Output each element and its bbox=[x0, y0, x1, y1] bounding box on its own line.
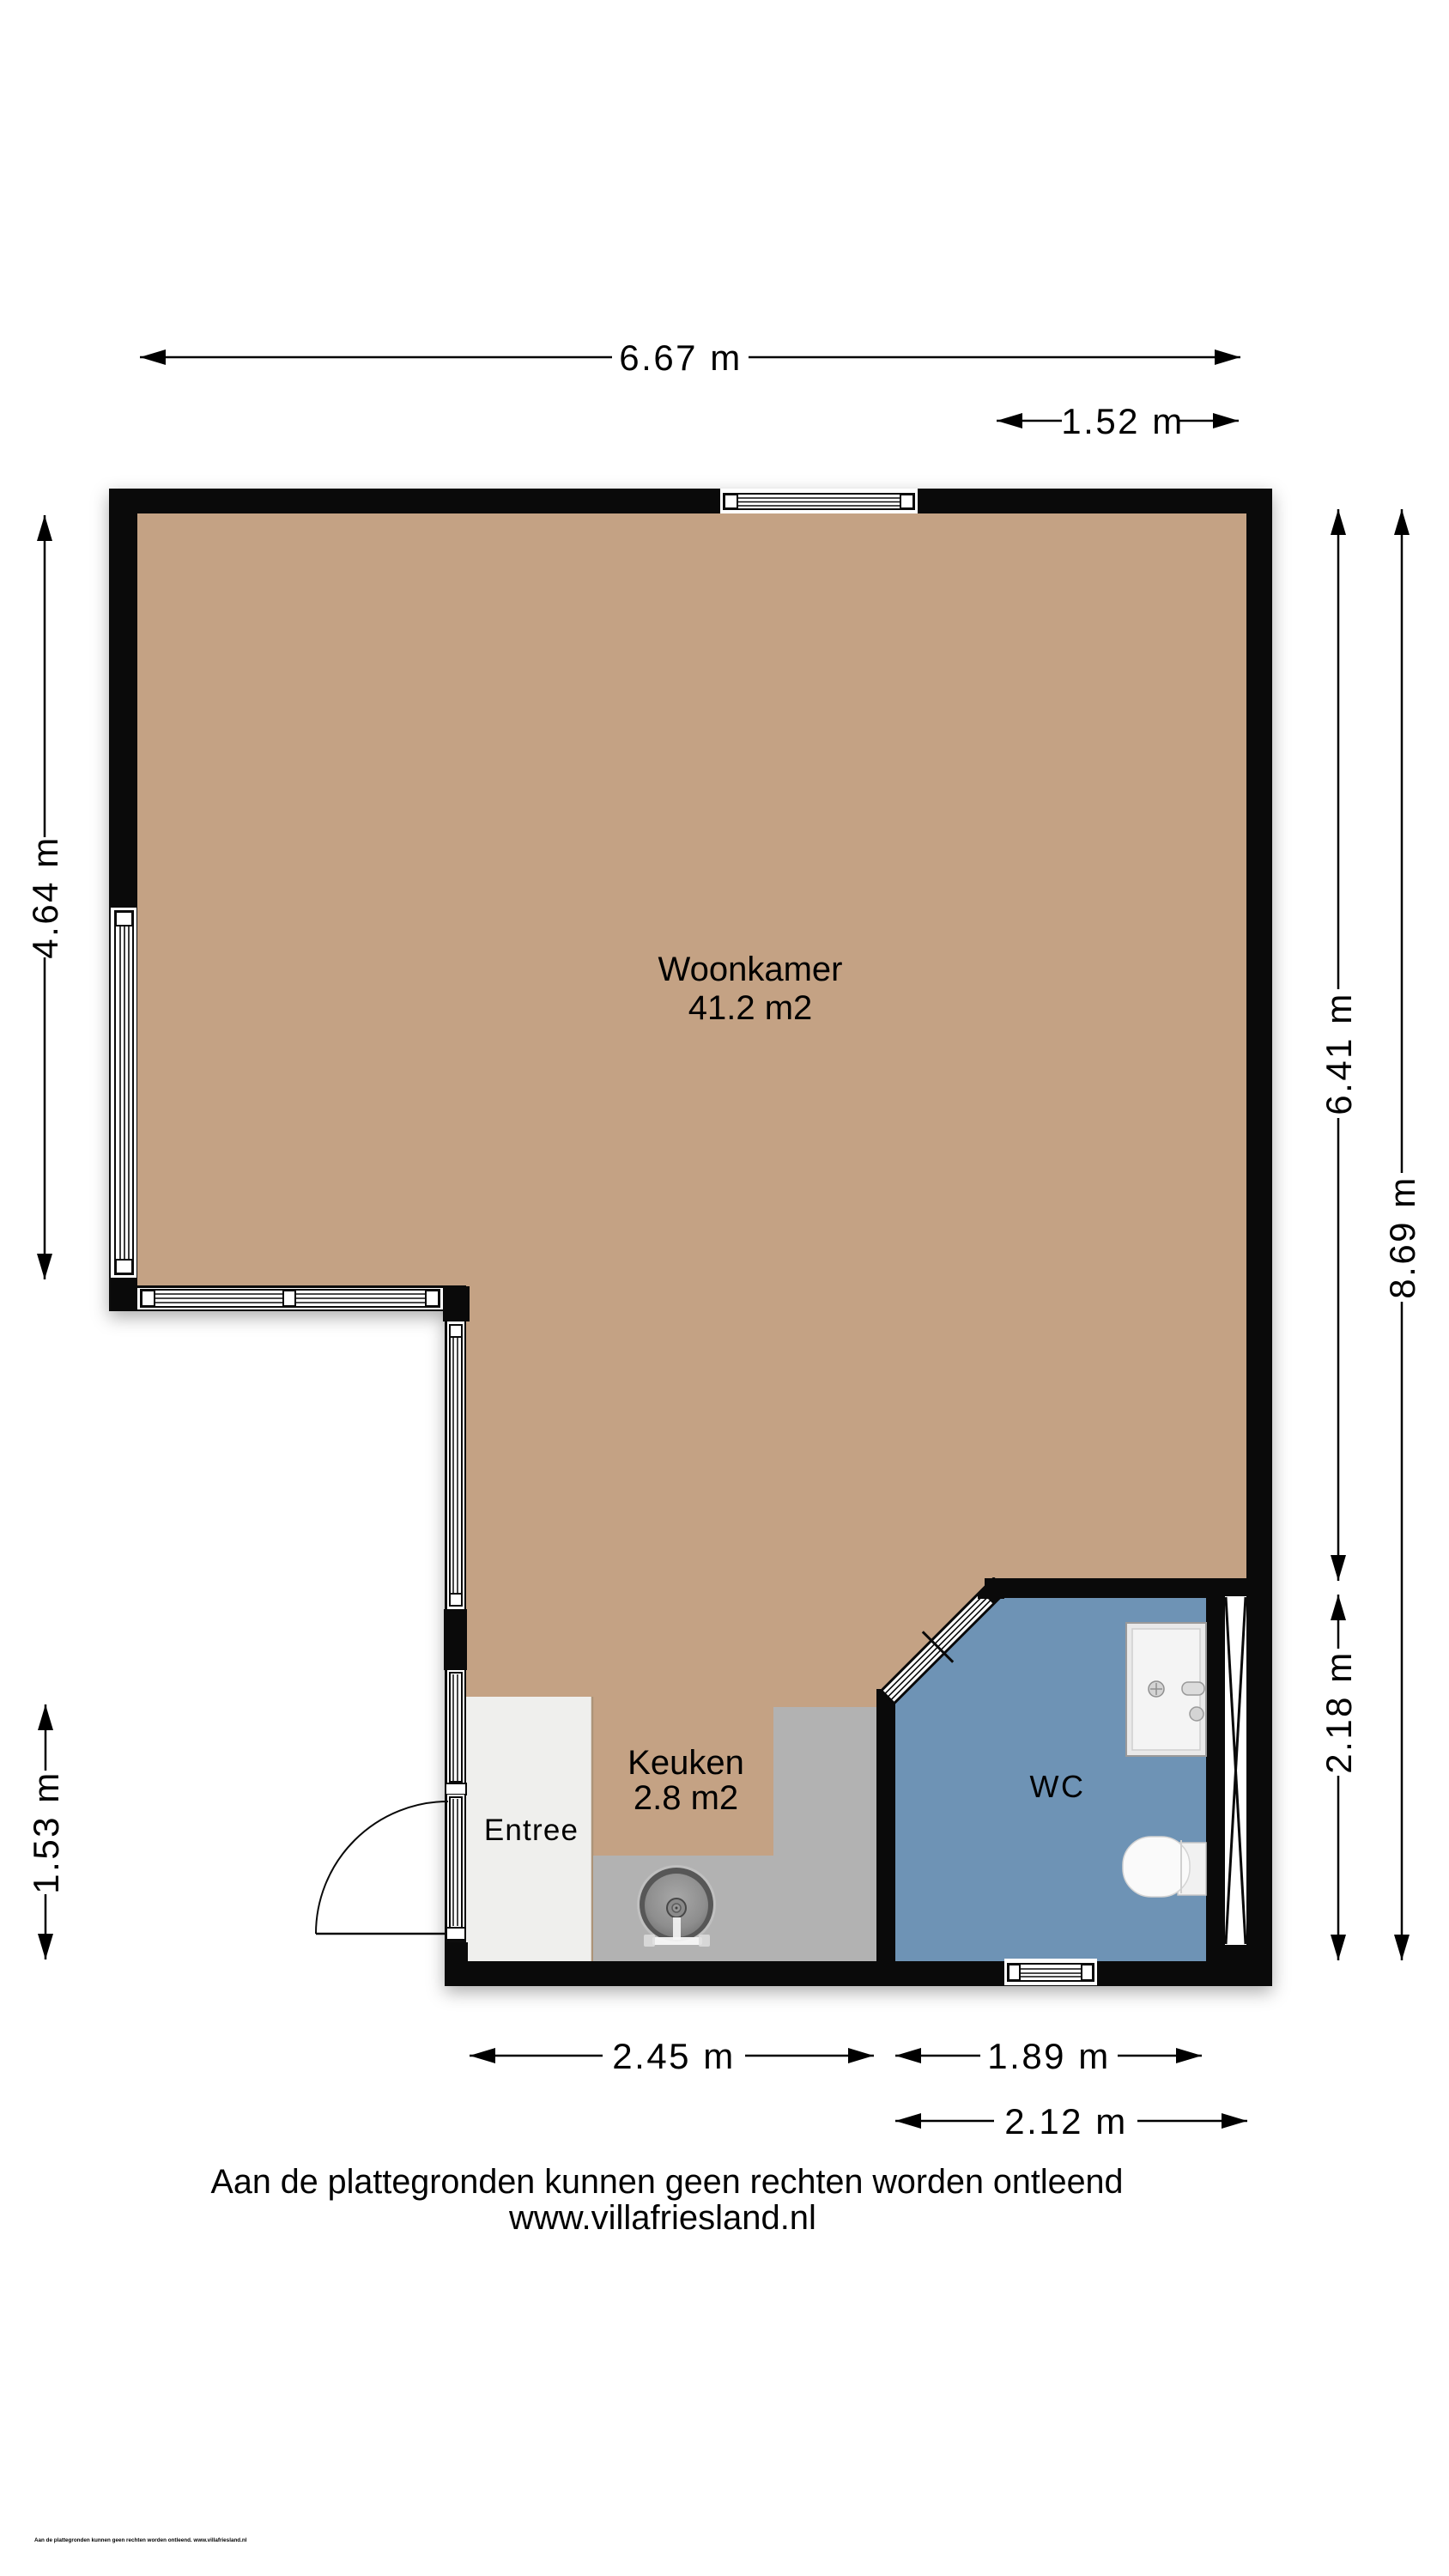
svg-text:1.52 m: 1.52 m bbox=[1061, 401, 1184, 441]
svg-text:1.89 m: 1.89 m bbox=[987, 2036, 1110, 2076]
svg-text:6.67 m: 6.67 m bbox=[619, 337, 742, 378]
svg-text:Woonkamer: Woonkamer bbox=[658, 951, 843, 988]
svg-text:2.45 m: 2.45 m bbox=[612, 2036, 735, 2076]
svg-text:4.64 m: 4.64 m bbox=[25, 835, 65, 958]
svg-text:8.69 m: 8.69 m bbox=[1382, 1176, 1422, 1298]
svg-text:6.41 m: 6.41 m bbox=[1319, 992, 1359, 1115]
svg-text:2.12 m: 2.12 m bbox=[1004, 2101, 1127, 2142]
svg-text:2.18 m: 2.18 m bbox=[1319, 1650, 1359, 1773]
svg-text:Keuken: Keuken bbox=[627, 1744, 744, 1782]
svg-text:1.53 m: 1.53 m bbox=[26, 1771, 66, 1893]
svg-text:Aan de plattegronden kunnen ge: Aan de plattegronden kunnen geen rechten… bbox=[34, 2537, 247, 2543]
svg-text:41.2 m2: 41.2 m2 bbox=[688, 989, 813, 1027]
svg-text:WC: WC bbox=[1030, 1769, 1086, 1804]
svg-text:Entree: Entree bbox=[484, 1814, 579, 1847]
svg-text:Aan de plattegronden kunnen ge: Aan de plattegronden kunnen geen rechten… bbox=[211, 2163, 1124, 2201]
svg-text:www.villafriesland.nl: www.villafriesland.nl bbox=[508, 2199, 816, 2237]
svg-text:2.8 m2: 2.8 m2 bbox=[634, 1779, 738, 1817]
